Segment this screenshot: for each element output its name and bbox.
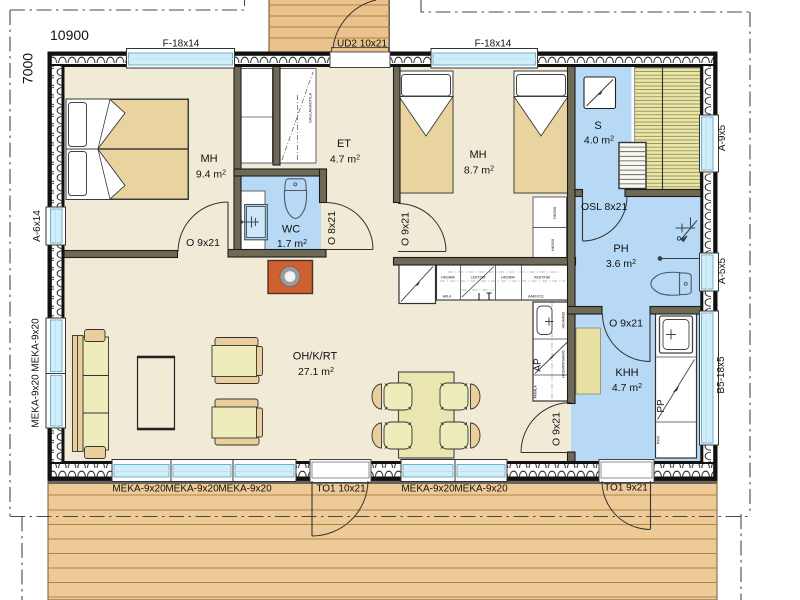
svg-text:UD2 10x21: UD2 10x21 [337,39,387,50]
svg-text:HK900: HK900 [552,206,557,219]
svg-text:ET: ET [337,138,351,150]
svg-text:HK900: HK900 [550,238,555,251]
svg-text:AKL4: AKL4 [443,295,452,299]
svg-text:HKSIM4: HKSIM4 [501,276,514,280]
svg-text:MH: MH [469,149,486,161]
svg-text:MEKA-9x20: MEKA-9x20 [165,484,219,495]
svg-text:8.7 m2: 8.7 m2 [464,164,494,176]
svg-text:HKSIM4: HKSIM4 [441,276,454,280]
svg-text:27.1 m2: 27.1 m2 [298,366,334,378]
svg-text:O 9x21: O 9x21 [186,237,220,249]
svg-text:MEKA-9x20: MEKA-9x20 [31,374,42,428]
svg-text:4.7 m2: 4.7 m2 [612,382,642,394]
svg-text:PH: PH [613,243,628,255]
svg-text:A-5x5: A-5x5 [717,258,728,285]
svg-text:1.7 m2: 1.7 m2 [277,238,307,250]
svg-text:OH/K/RT: OH/K/RT [293,351,338,363]
svg-text:MEKA-9x20: MEKA-9x20 [454,484,508,495]
svg-text:3.6 m2: 3.6 m2 [606,258,636,270]
svg-text:4.0 m2: 4.0 m2 [584,134,614,146]
svg-text:F-18x14: F-18x14 [163,39,200,50]
svg-text:MEKA-9x20: MEKA-9x20 [218,484,272,495]
svg-text:LKSTOM: LKSTOM [471,276,486,280]
svg-text:MH: MH [200,153,217,165]
svg-text:P9X5: P9X5 [657,436,661,444]
svg-text:O 9x21: O 9x21 [609,318,643,330]
svg-text:AKKALA: AKKALA [534,385,538,399]
svg-text:OSL 8x21: OSL 8x21 [581,201,627,213]
svg-text:7000: 7000 [20,53,36,84]
svg-text:9.4 m2: 9.4 m2 [196,168,226,180]
svg-text:MEKA-9x20: MEKA-9x20 [112,484,166,495]
svg-text:HKSIMPIRSAM92: HKSIMPIRSAM92 [562,350,566,378]
svg-text:HKSAIM92: HKSAIM92 [562,312,566,329]
svg-text:A-9x5: A-9x5 [717,125,728,152]
svg-text:F-18x14: F-18x14 [475,39,512,50]
svg-text:TO1 10x21: TO1 10x21 [316,484,366,495]
svg-text:O 8x21: O 8x21 [326,211,338,245]
svg-text:B5-18x5: B5-18x5 [716,356,727,394]
svg-text:10900: 10900 [50,27,89,43]
svg-text:TO1 9x21: TO1 9x21 [604,483,648,494]
svg-text:AP: AP [533,358,544,372]
svg-text:KKSTKIM: KKSTKIM [534,276,550,280]
svg-text:O 9x21: O 9x21 [400,212,412,246]
svg-text:WC: WC [282,224,300,236]
svg-text:PP: PP [656,399,667,413]
svg-text:AAKKX11: AAKKX11 [528,295,544,299]
svg-text:A-6x14: A-6x14 [32,210,43,242]
svg-text:NAULAKKOTILA: NAULAKKOTILA [308,93,313,124]
svg-text:KHH: KHH [615,367,638,379]
svg-text:O 9x21: O 9x21 [551,412,563,446]
svg-text:4.7 m2: 4.7 m2 [330,153,360,165]
svg-text:MEKA-9x20: MEKA-9x20 [401,484,455,495]
svg-text:MEKA-9x20: MEKA-9x20 [31,318,42,372]
svg-text:S: S [594,120,601,132]
